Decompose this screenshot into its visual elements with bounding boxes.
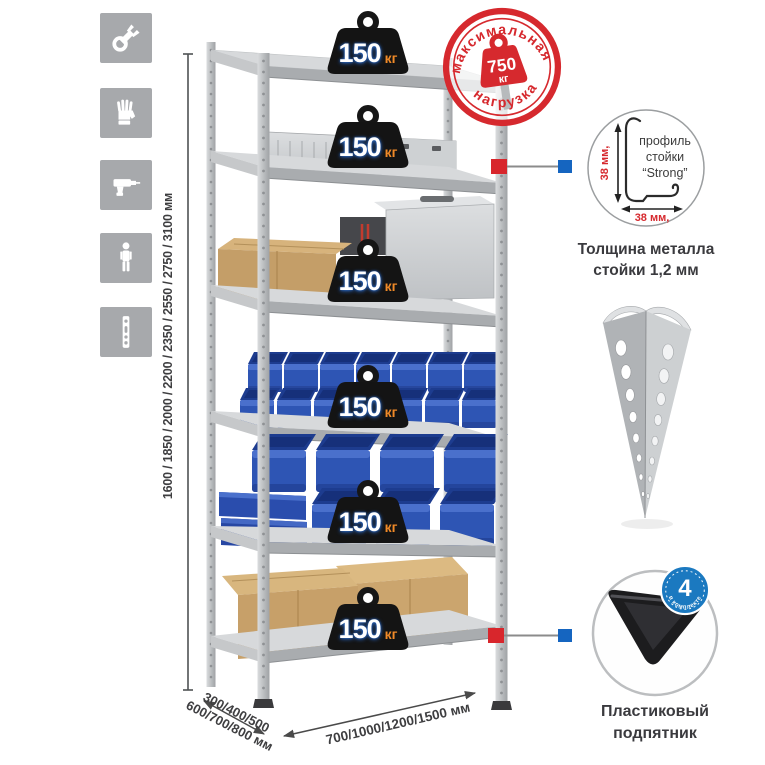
foot-callout-marker — [488, 628, 572, 643]
profile-caption: Толщина металла стойки 1,2 мм — [568, 239, 724, 281]
perforated-post-icon — [106, 312, 146, 352]
profile-dim-horizontal: 38 мм, — [635, 212, 670, 224]
person-icon — [106, 238, 146, 278]
profile-callout-marker — [491, 159, 572, 174]
legend-tile-gloves — [100, 88, 152, 138]
included-count-badge: 4 в комплекте — [659, 564, 711, 616]
legend-tile-person — [100, 233, 152, 283]
legend-tile-post — [100, 307, 152, 357]
infographic-canvas: 1600 / 1850 / 2000 / 2200 / 2350 / 2550 … — [0, 0, 765, 765]
angle-post-image — [603, 306, 691, 529]
foot-caption-line1: Пластиковый — [585, 701, 725, 723]
load-value: 150 — [339, 38, 381, 69]
badge-value: 4 — [678, 575, 692, 602]
profile-label-3: “Strong” — [642, 166, 687, 180]
profile-label-2: стойки — [646, 150, 684, 164]
load-unit: кг — [385, 404, 398, 420]
post-profile-detail: 38 мм, 38 мм, профиль стойки “Strong” — [584, 107, 708, 231]
gloves-icon — [106, 93, 146, 133]
drill-icon — [106, 165, 146, 205]
profile-dim-vertical: 38 мм, — [599, 146, 611, 181]
profile-caption-line1: Толщина металла — [568, 239, 724, 260]
load-value: 150 — [339, 266, 381, 297]
max-load-stamp: 750 кг максимальная нагрузка — [433, 0, 571, 136]
profile-label-1: профиль — [639, 134, 691, 148]
wrench-icon — [106, 18, 146, 58]
load-value: 150 — [339, 507, 381, 538]
foot-caption: Пластиковый подпятник — [585, 701, 725, 745]
legend-tile-drill — [100, 160, 152, 210]
height-dimension-label: 1600 / 1850 / 2000 / 2200 / 2350 / 2550 … — [159, 126, 177, 566]
shelf-load-weight-1: 150кг — [318, 9, 418, 79]
shelf-load-weight-2: 150кг — [318, 103, 418, 173]
load-value: 150 — [339, 614, 381, 645]
load-unit: кг — [385, 50, 398, 66]
load-value: 150 — [339, 132, 381, 163]
profile-caption-line2: стойки 1,2 мм — [568, 260, 724, 281]
load-unit: кг — [385, 519, 398, 535]
shelf-load-weight-5: 150кг — [318, 478, 418, 548]
load-unit: кг — [385, 278, 398, 294]
height-dimension-line — [183, 54, 193, 690]
load-unit: кг — [385, 626, 398, 642]
legend-tile-tools — [100, 13, 152, 63]
load-value: 150 — [339, 392, 381, 423]
shelf-load-weight-4: 150кг — [318, 363, 418, 433]
load-unit: кг — [385, 144, 398, 160]
shelf-load-weight-3: 150кг — [318, 237, 418, 307]
foot-caption-line2: подпятник — [585, 723, 725, 745]
shelf-load-weight-6: 150кг — [318, 585, 418, 655]
